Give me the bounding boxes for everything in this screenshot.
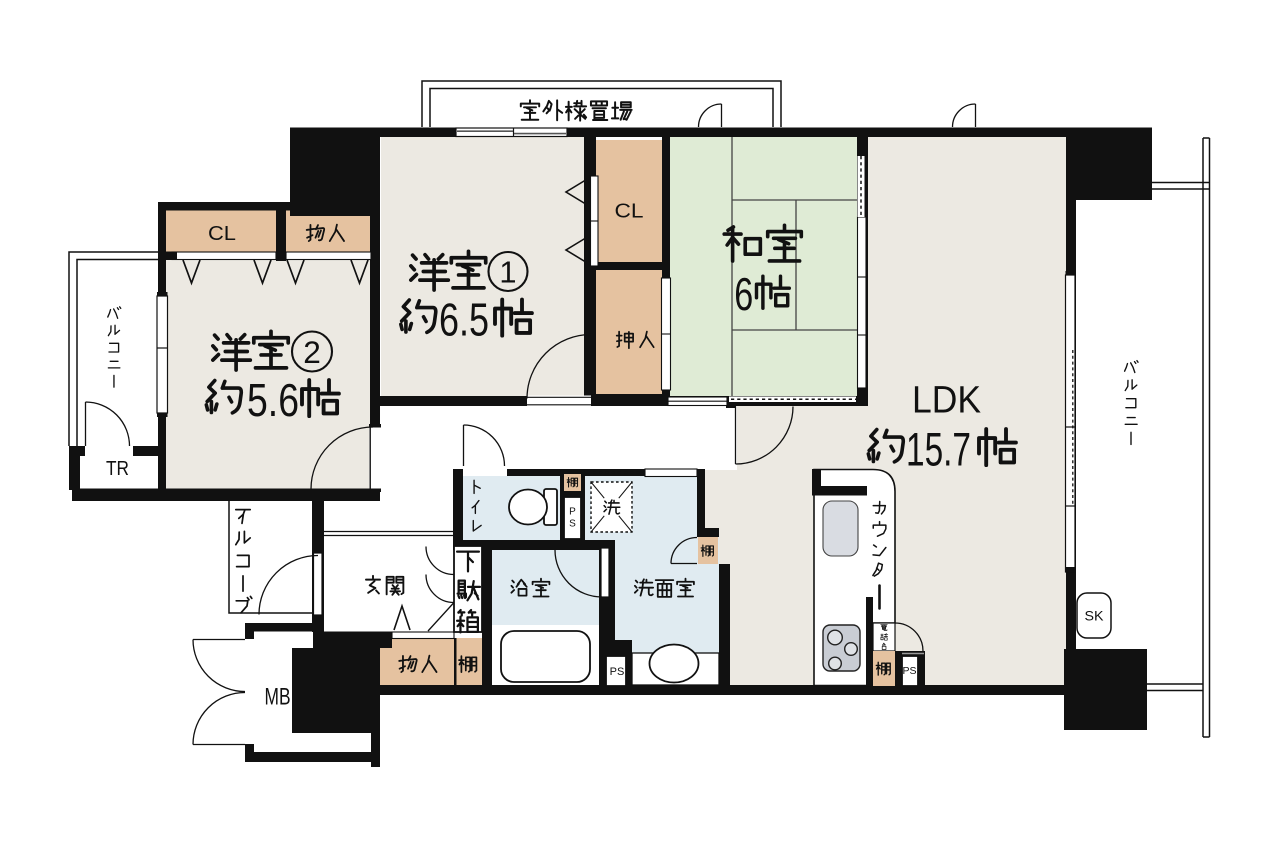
svg-text:PS: PS bbox=[902, 665, 916, 677]
svg-text:6.5: 6.5 bbox=[439, 294, 489, 346]
svg-text:1: 1 bbox=[499, 255, 516, 290]
svg-text:P: P bbox=[569, 507, 576, 518]
svg-text:5.6: 5.6 bbox=[247, 374, 299, 426]
svg-text:PS: PS bbox=[610, 666, 625, 678]
svg-text:LDK: LDK bbox=[912, 380, 981, 422]
svg-text:TR: TR bbox=[106, 458, 129, 480]
svg-text:CL: CL bbox=[208, 223, 236, 245]
svg-text:15.7: 15.7 bbox=[906, 423, 971, 476]
svg-text:CL: CL bbox=[615, 201, 644, 223]
svg-text:S: S bbox=[569, 519, 576, 530]
svg-text:2: 2 bbox=[303, 334, 321, 370]
svg-text:SK: SK bbox=[1085, 609, 1104, 624]
svg-text:6: 6 bbox=[734, 268, 753, 320]
svg-text:MB: MB bbox=[265, 684, 291, 711]
